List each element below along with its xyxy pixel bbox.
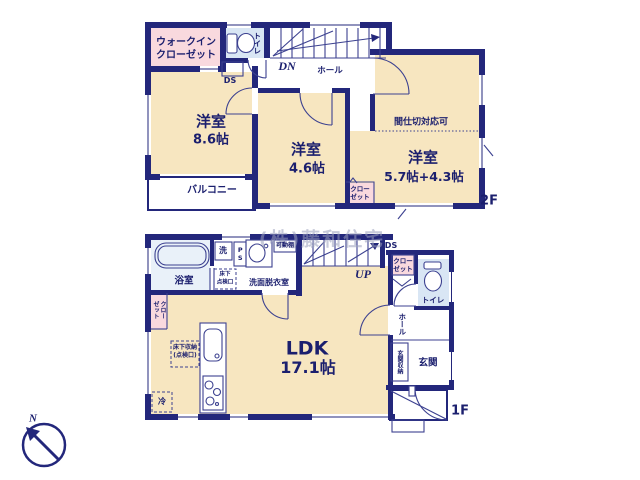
toilet-2f-label: トイレ — [253, 32, 261, 55]
room-4-6-name: 洋室 — [291, 143, 321, 158]
underfloor-hatch-label-2: 点検口 — [217, 280, 234, 286]
walk-in-closet-label-2: クローゼット — [156, 51, 216, 61]
partition-note-label: 間仕切対応可 — [394, 119, 448, 128]
hall-closet-label-1: クロー — [393, 258, 413, 265]
toilet-icon-2f — [227, 34, 255, 54]
closet-2f-label-1: クロー — [350, 186, 370, 193]
floor-2f-label: 2F — [480, 195, 498, 208]
compass-north-label: N — [29, 414, 37, 425]
floor-1f-label: 1F — [451, 405, 469, 418]
washer-label: 洗 — [219, 247, 227, 255]
bathroom-label: 浴室 — [174, 276, 193, 286]
toilet-1f-label: トイレ — [422, 296, 445, 304]
room-4-6-size: 4.6帖 — [289, 163, 325, 176]
hall-2f-label: ホール — [317, 67, 343, 76]
entrance-storage-label: 玄関収納 — [396, 350, 402, 374]
ldk-area-upper — [302, 266, 388, 295]
stairs-up-label: UP — [355, 268, 371, 280]
walk-in-closet-label-1: ウォークイン — [156, 38, 216, 48]
porch — [390, 386, 447, 432]
refrigerator-label: 冷 — [158, 398, 166, 406]
floorplan-image: ウォークイン クローゼット トイレ DS DN ホール 洋室 8.6帖 バルコニ… — [0, 0, 640, 480]
porch-step — [392, 420, 424, 432]
underfloor-hatch-label-1: 床下 — [219, 272, 230, 278]
room-5-7-size: 5.7帖+4.3帖 — [384, 171, 464, 184]
entrance-label: 玄関 — [418, 358, 437, 368]
room-5-7-name: 洋室 — [408, 151, 438, 166]
pipe-space-label: PS — [237, 246, 244, 262]
left-closet-label-1: クロー — [159, 301, 165, 319]
underfloor-storage-label-1: 床下収納 — [173, 345, 197, 351]
stairs-down-label: DN — [278, 60, 295, 72]
kitchen-icon — [200, 323, 226, 413]
stairs-2f-icon — [270, 28, 386, 58]
room-8-6-size: 8.6帖 — [193, 134, 229, 147]
hall-1f-label: ホール — [398, 313, 406, 336]
washroom-label: 洗面脱衣室 — [249, 279, 289, 287]
ldk-size: 17.1帖 — [280, 360, 335, 376]
left-closet-label-2: ゼット — [152, 301, 158, 319]
closet-2f-label-2: ゼット — [350, 194, 370, 201]
room-8-6-name: 洋室 — [196, 115, 226, 130]
balcony-label: バルコニー — [187, 186, 237, 196]
toilet-icon-1f — [424, 262, 442, 291]
duct-2f-label: DS — [224, 77, 236, 85]
hall-closet-label-2: ゼット — [393, 266, 413, 273]
ldk-name: LDK — [286, 340, 329, 359]
movable-shelf-label: 可動棚 — [276, 243, 294, 249]
compass-icon — [23, 424, 65, 466]
underfloor-storage-label-2: (点検口) — [173, 353, 197, 359]
duct-1f-label: DS — [385, 242, 397, 250]
